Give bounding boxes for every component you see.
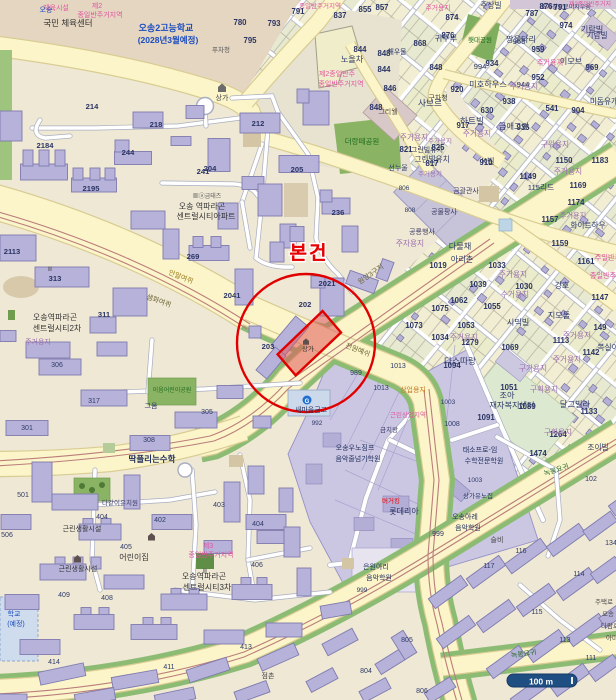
svg-text:롯데리아: 롯데리아	[389, 506, 419, 516]
svg-text:805: 805	[401, 637, 413, 644]
svg-text:종일반주거지역: 종일반주거지역	[299, 1, 341, 10]
svg-text:791: 791	[291, 7, 305, 16]
svg-text:주상빌: 주상빌	[480, 0, 501, 10]
svg-text:934: 934	[485, 59, 499, 68]
svg-text:G: G	[305, 399, 310, 405]
svg-text:506: 506	[1, 532, 13, 539]
svg-text:수학전문학원: 수학전문학원	[465, 456, 504, 465]
svg-text:205: 205	[291, 165, 304, 174]
svg-text:795: 795	[243, 36, 257, 45]
svg-text:994: 994	[474, 62, 488, 71]
svg-text:404: 404	[96, 514, 108, 521]
svg-text:다같이유치원: 다같이유치원	[102, 498, 138, 507]
svg-text:금애그린: 금애그린	[499, 121, 529, 131]
svg-text:404: 404	[252, 521, 264, 528]
svg-text:808: 808	[405, 207, 416, 214]
svg-text:주거용지: 주거용지	[463, 129, 491, 138]
svg-text:오송우노짐프: 오송우노짐프	[336, 443, 375, 452]
svg-text:236: 236	[332, 208, 345, 217]
svg-text:1474: 1474	[529, 449, 547, 458]
svg-text:주거용지: 주거용지	[553, 355, 581, 364]
svg-text:306: 306	[51, 362, 63, 369]
svg-text:1008: 1008	[444, 421, 460, 428]
svg-text:2041: 2041	[224, 291, 242, 300]
svg-text:100 m: 100 m	[529, 677, 554, 687]
svg-text:804: 804	[360, 668, 372, 675]
svg-text:횃대공원: 횃대공원	[468, 35, 492, 44]
svg-text:134: 134	[605, 540, 616, 547]
svg-text:311: 311	[98, 310, 111, 319]
svg-text:다스따랑: 다스따랑	[444, 355, 476, 366]
svg-text:1003: 1003	[441, 399, 456, 406]
svg-text:844: 844	[353, 45, 367, 54]
svg-text:218: 218	[150, 120, 163, 129]
svg-text:오송: 오송	[40, 6, 53, 14]
svg-text:825: 825	[431, 143, 445, 152]
svg-text:1159: 1159	[552, 239, 570, 248]
svg-text:본건: 본건	[290, 242, 329, 264]
svg-text:푸차청: 푸차청	[212, 45, 230, 54]
svg-text:오송역파라곤: 오송역파라곤	[33, 312, 77, 322]
svg-text:구획용지: 구획용지	[544, 427, 572, 437]
svg-text:▦ⓐ금태즈: ▦ⓐ금태즈	[193, 192, 222, 200]
svg-text:244: 244	[122, 148, 135, 157]
svg-text:하트빌: 하트빌	[460, 116, 484, 126]
svg-text:시믹빌: 시믹빌	[507, 317, 530, 327]
svg-text:269: 269	[187, 252, 200, 261]
svg-text:405: 405	[120, 544, 132, 551]
svg-text:공물팡사: 공물팡사	[431, 207, 457, 216]
svg-text:미돔유개: 미돔유개	[590, 96, 616, 106]
svg-text:113: 113	[559, 637, 570, 644]
svg-text:1055: 1055	[483, 302, 501, 311]
svg-text:855: 855	[358, 5, 372, 14]
svg-text:2195: 2195	[83, 184, 101, 193]
svg-text:115리드: 115리드	[528, 183, 554, 192]
svg-text:787: 787	[525, 9, 538, 18]
svg-text:조이빌: 조이빌	[587, 442, 608, 452]
svg-text:아마: 아마	[606, 633, 616, 642]
svg-text:금치왕: 금치왕	[380, 425, 398, 434]
svg-text:414: 414	[48, 659, 60, 666]
svg-text:슬비: 슬비	[491, 535, 504, 544]
svg-text:버거킹: 버거킹	[382, 496, 400, 505]
svg-text:149: 149	[593, 323, 607, 332]
svg-text:974: 974	[559, 21, 573, 30]
svg-text:주거용지: 주거용지	[554, 167, 582, 176]
svg-text:선누울: 선누울	[388, 163, 408, 172]
svg-text:952: 952	[531, 73, 545, 82]
svg-text:403: 403	[213, 502, 225, 509]
svg-text:848: 848	[429, 63, 443, 72]
svg-text:202: 202	[299, 300, 312, 309]
svg-text:1003: 1003	[468, 477, 483, 484]
svg-text:999: 999	[357, 587, 368, 594]
svg-text:313: 313	[49, 274, 62, 283]
svg-text:주거용지: 주거용지	[499, 270, 527, 279]
svg-text:오송2고능학교: 오송2고능학교	[139, 22, 194, 33]
svg-text:오송 역파라곤: 오송 역파라곤	[179, 201, 225, 211]
svg-text:116: 116	[515, 548, 526, 555]
svg-text:115: 115	[531, 609, 542, 616]
svg-text:사브르: 사브르	[418, 98, 442, 108]
svg-text:은원아리: 은원아리	[363, 562, 389, 571]
svg-text:구위용지: 구위용지	[541, 140, 569, 149]
svg-text:102: 102	[585, 476, 597, 483]
svg-text:1034: 1034	[431, 333, 449, 342]
svg-text:달그빌라: 달그빌라	[560, 399, 591, 409]
svg-text:주거용지: 주거용지	[400, 133, 428, 142]
svg-text:미호하우스: 미호하우스	[469, 79, 507, 89]
svg-text:837: 837	[333, 11, 346, 20]
svg-text:920: 920	[450, 85, 464, 94]
svg-text:더랑떼공원: 더랑떼공원	[345, 136, 380, 146]
svg-text:(2028년3월예정): (2028년3월예정)	[138, 35, 199, 45]
svg-text:541: 541	[545, 104, 559, 113]
svg-text:조아: 조아	[499, 390, 515, 400]
svg-text:제3: 제3	[203, 542, 213, 550]
svg-text:상가: 상가	[302, 344, 314, 353]
svg-text:(예정): (예정)	[7, 619, 25, 628]
svg-text:그옴: 그옴	[145, 402, 158, 410]
svg-text:1174: 1174	[568, 198, 586, 207]
svg-text:2113: 2113	[4, 247, 20, 256]
svg-text:제2종일반주: 제2종일반주	[319, 69, 356, 78]
svg-text:점촌: 점촌	[262, 671, 275, 680]
svg-text:구획용지: 구획용지	[530, 384, 558, 394]
svg-text:1157: 1157	[542, 215, 559, 224]
svg-text:1013: 1013	[373, 385, 389, 392]
svg-text:주거용지: 주거용지	[563, 331, 591, 340]
svg-text:주택로: 주택로	[595, 597, 613, 606]
svg-text:999: 999	[432, 531, 444, 538]
svg-text:K빌: K빌	[482, 156, 495, 166]
svg-text:주거용지: 주거용지	[560, 211, 586, 220]
svg-text:1073: 1073	[405, 321, 423, 330]
svg-text:제2종일반주거지: 제2종일반주거지	[569, 0, 611, 8]
svg-text:501: 501	[17, 492, 29, 499]
svg-text:212: 212	[252, 119, 265, 128]
svg-text:1013: 1013	[390, 363, 406, 370]
svg-text:846: 846	[383, 84, 397, 93]
svg-text:태소프로-임: 태소프로-임	[463, 446, 498, 454]
svg-text:음악학원: 음악학원	[455, 523, 481, 532]
svg-text:센트럴시티아파트: 센트럴시티아파트	[177, 211, 236, 221]
svg-text:959: 959	[531, 45, 545, 54]
svg-text:1039: 1039	[469, 280, 487, 289]
svg-text:종일반주: 종일반주	[590, 271, 616, 280]
svg-text:공룡행사: 공룡행사	[409, 227, 435, 236]
svg-text:아리촌: 아리촌	[451, 254, 474, 264]
svg-text:주거용지: 주거용지	[537, 58, 563, 67]
svg-text:969: 969	[585, 63, 599, 72]
svg-text:1075: 1075	[431, 304, 449, 313]
svg-text:상업용지: 상업용지	[400, 385, 426, 394]
svg-text:793: 793	[267, 19, 281, 28]
svg-text:114: 114	[573, 571, 584, 578]
svg-text:구거용지: 구거용지	[519, 364, 547, 373]
svg-text:1033: 1033	[488, 261, 506, 270]
svg-text:1149: 1149	[520, 172, 538, 181]
svg-text:1053: 1053	[457, 321, 475, 330]
svg-text:센트럴시티3차: 센트럴시티3차	[183, 582, 232, 592]
svg-text:2021: 2021	[319, 279, 337, 288]
svg-text:409: 409	[58, 592, 70, 599]
svg-text:402: 402	[154, 517, 166, 524]
svg-text:301: 301	[21, 425, 33, 432]
svg-text:학교: 학교	[8, 609, 21, 618]
svg-text:989: 989	[350, 370, 362, 377]
svg-text:2184: 2184	[37, 141, 55, 150]
svg-text:1147: 1147	[592, 293, 609, 302]
svg-text:968: 968	[513, 37, 526, 46]
svg-text:992: 992	[312, 420, 323, 427]
svg-text:308: 308	[143, 437, 155, 444]
svg-text:주일반주: 주일반주	[595, 253, 616, 262]
svg-text:844: 844	[377, 65, 391, 74]
svg-text:406: 406	[251, 562, 263, 569]
svg-text:센트럴시티2차: 센트럴시티2차	[33, 323, 82, 333]
svg-text:1183: 1183	[592, 156, 610, 165]
svg-text:새마을금고: 새마을금고	[295, 405, 328, 414]
svg-text:806: 806	[399, 185, 410, 192]
svg-text:노을차: 노을차	[341, 55, 364, 64]
svg-text:상가유노집: 상가유노집	[463, 491, 493, 500]
svg-text:1091: 1091	[477, 413, 495, 422]
svg-text:203: 203	[262, 342, 275, 351]
svg-text:강호: 강호	[555, 280, 569, 290]
svg-text:408: 408	[101, 595, 113, 602]
svg-text:재자복지센터: 재자복지센터	[489, 400, 534, 410]
svg-text:868: 868	[413, 39, 427, 48]
svg-text:딱플리는수학: 딱플리는수학	[129, 454, 176, 464]
svg-text:1169: 1169	[570, 181, 588, 190]
svg-text:국민 체육센터: 국민 체육센터	[43, 18, 92, 28]
svg-text:종일반주거지역: 종일반주거지역	[188, 550, 233, 559]
svg-text:780: 780	[233, 18, 247, 27]
svg-text:848: 848	[369, 103, 383, 112]
svg-text:848: 848	[377, 49, 391, 58]
svg-text:117: 117	[483, 563, 494, 570]
svg-text:상가: 상가	[216, 93, 229, 102]
svg-text:806: 806	[416, 688, 428, 695]
svg-text:1069: 1069	[501, 343, 519, 352]
svg-text:111: 111	[586, 655, 597, 662]
svg-text:다물채: 다물채	[449, 241, 472, 251]
svg-text:주자용지: 주자용지	[396, 239, 424, 248]
svg-text:귀뚜루: 귀뚜루	[435, 33, 458, 43]
svg-text:938: 938	[502, 97, 516, 106]
svg-text:411: 411	[163, 664, 174, 671]
svg-text:주거용지: 주거용지	[25, 337, 51, 346]
svg-text:821: 821	[399, 145, 413, 154]
svg-text:413: 413	[240, 644, 252, 651]
svg-text:제2: 제2	[92, 2, 102, 10]
svg-text:주거용지: 주거용지	[425, 3, 450, 12]
svg-text:이음어린이공원: 이음어린이공원	[153, 386, 192, 394]
svg-text:305: 305	[201, 409, 213, 416]
svg-text:음악줄넘기학원: 음악줄넘기학원	[335, 454, 380, 463]
svg-text:874: 874	[445, 13, 459, 22]
svg-text:204: 204	[204, 164, 217, 173]
svg-text:종일반주거지역: 종일반주거지역	[318, 79, 363, 88]
svg-text:1150: 1150	[556, 156, 574, 165]
svg-text:음악학원: 음악학원	[366, 573, 392, 582]
svg-text:금괄관사: 금괄관사	[453, 186, 479, 195]
svg-text:주거용지: 주거용지	[450, 333, 478, 342]
svg-text:857: 857	[375, 3, 388, 12]
svg-text:어린이집: 어린이집	[119, 552, 148, 562]
svg-text:근린생활시설: 근린생활시설	[59, 564, 98, 573]
svg-text:1062: 1062	[450, 296, 468, 305]
svg-text:오송아레: 오송아레	[452, 512, 478, 521]
svg-text:오송역파라곤: 오송역파라곤	[182, 571, 226, 581]
svg-text:214: 214	[86, 102, 99, 111]
svg-text:630: 630	[480, 106, 494, 115]
svg-text:주거용지: 주거용지	[418, 169, 442, 178]
svg-text:1019: 1019	[429, 261, 447, 270]
svg-text:수거용지: 수거용지	[501, 290, 529, 299]
svg-text:화이트하우: 화이트하우	[570, 220, 605, 230]
svg-text:오송: 오송	[602, 610, 614, 618]
svg-text:그린빌유치: 그린빌유치	[414, 154, 449, 164]
svg-text:복실이: 복실이	[597, 342, 616, 352]
svg-text:기람빌: 기람빌	[586, 30, 607, 40]
svg-text:근린상업지역: 근린상업지역	[390, 410, 426, 419]
svg-text:Ⅲ: Ⅲ	[48, 267, 52, 273]
svg-text:1161: 1161	[578, 257, 596, 266]
svg-text:지모돌: 지모돌	[548, 311, 571, 320]
svg-text:944: 944	[517, 80, 531, 89]
svg-text:근린생활시설: 근린생활시설	[63, 524, 102, 533]
svg-text:904: 904	[571, 106, 585, 115]
svg-text:317: 317	[88, 398, 100, 405]
svg-text:다람로: 다람로	[601, 621, 616, 630]
